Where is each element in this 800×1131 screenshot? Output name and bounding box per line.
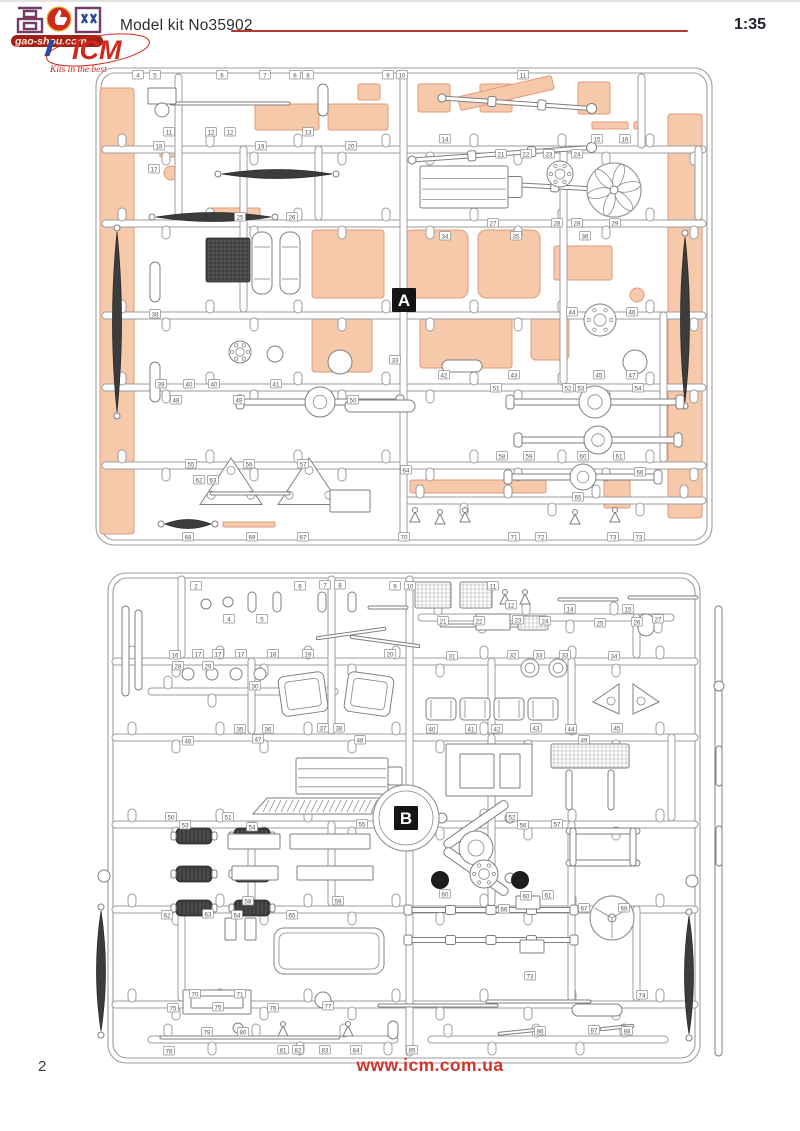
svg-text:59: 59 bbox=[526, 453, 533, 460]
part-number-tag: 26 bbox=[632, 618, 643, 627]
svg-text:77: 77 bbox=[325, 1003, 332, 1010]
svg-text:41: 41 bbox=[273, 381, 280, 388]
svg-text:45: 45 bbox=[596, 372, 603, 379]
part-number-tag: 17 bbox=[149, 165, 160, 174]
svg-text:5: 5 bbox=[260, 616, 264, 623]
part-number-tag: 73 bbox=[608, 533, 619, 542]
svg-text:55: 55 bbox=[188, 461, 195, 468]
svg-text:86: 86 bbox=[537, 1028, 544, 1035]
svg-text:18: 18 bbox=[270, 651, 277, 658]
svg-text:21: 21 bbox=[498, 151, 505, 158]
part-number-tag: 33 bbox=[560, 651, 571, 660]
svg-text:17: 17 bbox=[215, 651, 222, 658]
part-number-tag: 8 bbox=[303, 71, 314, 80]
svg-text:15: 15 bbox=[594, 136, 601, 143]
svg-text:47: 47 bbox=[255, 736, 262, 743]
svg-text:18: 18 bbox=[156, 143, 163, 150]
part-number-tag: 49 bbox=[579, 736, 590, 745]
part-number-tag: 18 bbox=[154, 142, 165, 151]
part-number-tag: 64 bbox=[401, 466, 412, 475]
part-number-tag: 36 bbox=[263, 725, 274, 734]
part-number-tag: 42 bbox=[439, 371, 450, 380]
svg-text:54: 54 bbox=[635, 385, 642, 392]
svg-text:76: 76 bbox=[270, 1005, 277, 1012]
header-rule bbox=[231, 30, 688, 32]
part-number-tag: 39 bbox=[156, 380, 167, 389]
part-number-tag: 6 bbox=[217, 71, 228, 80]
svg-text:42: 42 bbox=[494, 726, 501, 733]
svg-text:85: 85 bbox=[409, 1047, 416, 1054]
part-number-tag: 15 bbox=[592, 135, 603, 144]
part-number-tag: 11 bbox=[488, 582, 499, 591]
svg-text:34: 34 bbox=[611, 653, 618, 660]
part-number-tag: 62 bbox=[162, 911, 173, 920]
svg-text:7: 7 bbox=[263, 72, 267, 79]
scale-label: 1:35 bbox=[734, 16, 766, 34]
svg-text:63: 63 bbox=[210, 477, 217, 484]
svg-text:22: 22 bbox=[476, 618, 483, 625]
part-number-tag: 65 bbox=[573, 493, 584, 502]
part-number-tag: 34 bbox=[609, 652, 620, 661]
svg-text:12: 12 bbox=[227, 129, 234, 136]
svg-text:44: 44 bbox=[568, 726, 575, 733]
svg-text:58: 58 bbox=[499, 453, 506, 460]
svg-text:84: 84 bbox=[353, 1047, 360, 1054]
svg-text:83: 83 bbox=[322, 1047, 329, 1054]
svg-text:79: 79 bbox=[204, 1029, 211, 1036]
svg-text:4: 4 bbox=[227, 616, 231, 623]
part-number-tag: 71 bbox=[235, 990, 246, 999]
part-number-tag: 48 bbox=[355, 736, 366, 745]
svg-text:82: 82 bbox=[295, 1047, 302, 1054]
svg-text:78: 78 bbox=[166, 1048, 173, 1055]
svg-text:60: 60 bbox=[442, 891, 449, 898]
part-number-tag: 73 bbox=[525, 972, 536, 981]
svg-text:21: 21 bbox=[440, 618, 447, 625]
part-number-tag: 35 bbox=[235, 725, 246, 734]
svg-text:71: 71 bbox=[511, 534, 518, 541]
svg-text:53: 53 bbox=[578, 385, 585, 392]
part-number-tag: 85 bbox=[407, 1046, 418, 1055]
part-number-tag: 67 bbox=[298, 533, 309, 542]
part-number-tag: 14 bbox=[440, 135, 451, 144]
part-number-tag: 78 bbox=[164, 1047, 175, 1056]
svg-text:57: 57 bbox=[554, 821, 561, 828]
part-number-tag: 41 bbox=[271, 380, 282, 389]
part-number-tag: 66 bbox=[499, 905, 510, 914]
part-number-tag: 59 bbox=[524, 452, 535, 461]
svg-text:38: 38 bbox=[336, 725, 343, 732]
svg-text:80: 80 bbox=[240, 1029, 247, 1036]
svg-text:2: 2 bbox=[194, 583, 198, 590]
part-number-tag: 80 bbox=[238, 1028, 249, 1037]
part-number-tag: 59 bbox=[333, 897, 344, 906]
part-number-tag: 25 bbox=[595, 619, 606, 628]
svg-text:69: 69 bbox=[249, 534, 256, 541]
svg-text:8: 8 bbox=[293, 72, 297, 79]
sprue-letter-b: B bbox=[373, 785, 439, 851]
part-number-tag: 42 bbox=[492, 725, 503, 734]
svg-text:16: 16 bbox=[172, 652, 179, 659]
svg-text:66: 66 bbox=[501, 906, 508, 913]
part-number-tag: 23 bbox=[513, 616, 524, 625]
svg-text:67: 67 bbox=[581, 905, 588, 912]
part-number-tag: 8 bbox=[290, 71, 301, 80]
svg-text:30: 30 bbox=[252, 683, 259, 690]
page-title: Model kit No35902 bbox=[120, 17, 253, 35]
part-number-tag: 68 bbox=[619, 904, 630, 913]
part-number-tag: 44 bbox=[566, 725, 577, 734]
svg-text:61: 61 bbox=[616, 453, 623, 460]
svg-text:73: 73 bbox=[610, 534, 617, 541]
part-number-tag: 14 bbox=[565, 605, 576, 614]
svg-text:40: 40 bbox=[429, 726, 436, 733]
svg-text:27: 27 bbox=[655, 616, 662, 623]
svg-text:13: 13 bbox=[305, 129, 312, 136]
part-number-tag: 44 bbox=[567, 308, 578, 317]
part-number-tag: 72 bbox=[536, 533, 547, 542]
part-number-tag: 57 bbox=[552, 820, 563, 829]
svg-text:15: 15 bbox=[625, 606, 632, 613]
part-number-tag: 16 bbox=[170, 651, 181, 660]
part-number-tag: 28 bbox=[173, 662, 184, 671]
part-number-tag: 45 bbox=[612, 724, 623, 733]
part-number-tag: 38 bbox=[150, 310, 161, 319]
svg-text:70: 70 bbox=[192, 991, 199, 998]
sprue-b-diagram: 2456789101112141516171717181920212223242… bbox=[88, 566, 736, 1071]
svg-text:10: 10 bbox=[399, 72, 406, 79]
svg-text:58: 58 bbox=[245, 898, 252, 905]
part-number-tag: 46 bbox=[627, 308, 638, 317]
part-number-tag: 84 bbox=[351, 1046, 362, 1055]
svg-text:52: 52 bbox=[565, 385, 572, 392]
manual-page: { "header": { "title": "Model kit No3590… bbox=[0, 0, 800, 1131]
part-number-tag: 27 bbox=[488, 219, 499, 228]
svg-text:42: 42 bbox=[441, 372, 448, 379]
svg-text:32: 32 bbox=[510, 652, 517, 659]
part-number-tag: 37 bbox=[318, 724, 329, 733]
svg-text:48: 48 bbox=[173, 397, 180, 404]
svg-text:33: 33 bbox=[562, 652, 569, 659]
part-number-tag: 65 bbox=[287, 911, 298, 920]
part-number-tag: 58 bbox=[497, 452, 508, 461]
svg-text:17: 17 bbox=[195, 651, 202, 658]
svg-text:34: 34 bbox=[442, 233, 449, 240]
svg-text:62: 62 bbox=[196, 477, 203, 484]
part-number-tag: 43 bbox=[509, 371, 520, 380]
part-number-tag: 4 bbox=[224, 615, 235, 624]
part-number-tag: 70 bbox=[399, 533, 410, 542]
svg-text:11: 11 bbox=[166, 129, 173, 136]
part-number-tag: 15 bbox=[623, 605, 634, 614]
svg-text:23: 23 bbox=[546, 151, 553, 158]
part-number-tag: 68 bbox=[183, 533, 194, 542]
part-number-tag: 56 bbox=[518, 821, 529, 830]
svg-text:65: 65 bbox=[289, 912, 296, 919]
part-number-tag: 30 bbox=[250, 682, 261, 691]
part-number-tag: 77 bbox=[323, 1002, 334, 1011]
part-number-tag: 55 bbox=[186, 460, 197, 469]
svg-text:52: 52 bbox=[509, 814, 516, 821]
svg-text:28: 28 bbox=[574, 220, 581, 227]
part-number-tag: 33 bbox=[390, 356, 401, 365]
part-number-tag: 52 bbox=[563, 384, 574, 393]
part-number-tag: 75 bbox=[168, 1004, 179, 1013]
svg-text:16: 16 bbox=[622, 136, 629, 143]
svg-text:A: A bbox=[398, 291, 410, 310]
part-number-tag: 12 bbox=[206, 128, 217, 137]
svg-text:33: 33 bbox=[392, 357, 399, 364]
svg-text:19: 19 bbox=[258, 143, 265, 150]
svg-text:26: 26 bbox=[634, 619, 641, 626]
part-number-tag: 18 bbox=[268, 650, 279, 659]
part-number-tag: 12 bbox=[225, 128, 236, 137]
part-number-tag: 53 bbox=[180, 821, 191, 830]
part-number-tag: 51 bbox=[223, 813, 234, 822]
svg-text:62: 62 bbox=[164, 912, 171, 919]
part-number-tag: 52 bbox=[507, 813, 518, 822]
svg-text:65: 65 bbox=[575, 494, 582, 501]
svg-text:75: 75 bbox=[215, 1004, 222, 1011]
svg-text:12: 12 bbox=[508, 602, 515, 609]
svg-text:20: 20 bbox=[387, 651, 394, 658]
svg-text:63: 63 bbox=[205, 911, 212, 918]
svg-text:56: 56 bbox=[246, 461, 253, 468]
page-number: 2 bbox=[38, 1058, 46, 1075]
svg-text:29: 29 bbox=[205, 663, 212, 670]
svg-text:35: 35 bbox=[237, 726, 244, 733]
svg-text:50: 50 bbox=[350, 397, 357, 404]
svg-text:11: 11 bbox=[520, 72, 527, 79]
svg-text:87: 87 bbox=[591, 1027, 598, 1034]
svg-text:44: 44 bbox=[569, 309, 576, 316]
svg-text:64: 64 bbox=[234, 912, 241, 919]
svg-text:25: 25 bbox=[597, 620, 604, 627]
svg-text:73: 73 bbox=[527, 973, 534, 980]
part-number-tag: 61 bbox=[543, 891, 554, 900]
part-number-tag: 9 bbox=[390, 582, 401, 591]
part-number-tag: 22 bbox=[521, 150, 532, 159]
part-number-tag: 21 bbox=[438, 617, 449, 626]
thumbs-up-icon bbox=[47, 7, 71, 31]
site-char-right-icon bbox=[76, 8, 100, 32]
part-number-tag: 79 bbox=[202, 1028, 213, 1037]
part-number-tag: 5 bbox=[257, 615, 268, 624]
svg-text:72: 72 bbox=[538, 534, 545, 541]
part-number-tag: 40 bbox=[184, 380, 195, 389]
svg-text:74: 74 bbox=[639, 992, 646, 999]
part-number-tag: 9 bbox=[383, 71, 394, 80]
svg-text:61: 61 bbox=[545, 892, 552, 899]
part-number-tag: 60 bbox=[440, 890, 451, 899]
svg-text:46: 46 bbox=[185, 738, 192, 745]
part-number-tag: 31 bbox=[447, 652, 458, 661]
svg-text:68: 68 bbox=[621, 905, 628, 912]
svg-text:8: 8 bbox=[338, 582, 342, 589]
part-number-tag: 7 bbox=[260, 71, 271, 80]
part-number-tag: 24 bbox=[540, 617, 551, 626]
part-number-tag: 81 bbox=[278, 1046, 289, 1055]
svg-text:64: 64 bbox=[403, 467, 410, 474]
part-number-tag: 21 bbox=[496, 150, 507, 159]
part-number-tag: 47 bbox=[253, 735, 264, 744]
part-number-tag: 66 bbox=[635, 468, 646, 477]
part-number-tag: 64 bbox=[232, 911, 243, 920]
part-number-tag: 28 bbox=[552, 219, 563, 228]
part-number-tag: 63 bbox=[203, 910, 214, 919]
svg-text:27: 27 bbox=[490, 220, 497, 227]
svg-text:53: 53 bbox=[182, 822, 189, 829]
part-number-tag: 32 bbox=[508, 651, 519, 660]
svg-text:37: 37 bbox=[320, 725, 327, 732]
svg-text:48: 48 bbox=[357, 737, 364, 744]
svg-text:22: 22 bbox=[523, 151, 530, 158]
svg-text:10: 10 bbox=[407, 583, 414, 590]
part-number-tag: 8 bbox=[335, 581, 346, 590]
svg-text:40: 40 bbox=[186, 381, 193, 388]
part-number-tag: 20 bbox=[346, 142, 357, 151]
svg-text:9: 9 bbox=[393, 583, 397, 590]
svg-text:36: 36 bbox=[582, 233, 589, 240]
part-number-tag: 13 bbox=[303, 128, 314, 137]
part-number-tag: 45 bbox=[594, 371, 605, 380]
part-number-tag: 36 bbox=[580, 232, 591, 241]
part-number-tag: 74 bbox=[637, 991, 648, 1000]
part-number-tag: 17 bbox=[213, 650, 224, 659]
part-number-tag: 54 bbox=[633, 384, 644, 393]
svg-text:55: 55 bbox=[359, 821, 366, 828]
part-number-tag: 83 bbox=[320, 1046, 331, 1055]
part-number-tag: 40 bbox=[209, 380, 220, 389]
svg-text:24: 24 bbox=[542, 618, 549, 625]
svg-text:51: 51 bbox=[493, 385, 500, 392]
svg-text:8: 8 bbox=[306, 72, 310, 79]
site-url: www.icm.com.ua bbox=[290, 1055, 570, 1076]
part-number-tag: 46 bbox=[183, 737, 194, 746]
part-number-tag: 25 bbox=[235, 213, 246, 222]
svg-text:51: 51 bbox=[225, 814, 232, 821]
part-number-tag: 38 bbox=[334, 724, 345, 733]
part-number-tag: 27 bbox=[653, 615, 664, 624]
part-number-tag: 29 bbox=[203, 662, 214, 671]
part-number-tag: 60 bbox=[521, 892, 532, 901]
svg-text:B: B bbox=[400, 809, 412, 828]
part-number-tag: 26 bbox=[287, 213, 298, 222]
part-number-tag: 11 bbox=[518, 71, 529, 80]
svg-text:49: 49 bbox=[581, 737, 588, 744]
svg-text:59: 59 bbox=[335, 898, 342, 905]
part-number-tag: 47 bbox=[627, 371, 638, 380]
part-number-tag: 33 bbox=[534, 651, 545, 660]
svg-text:56: 56 bbox=[520, 822, 527, 829]
svg-text:41: 41 bbox=[468, 726, 475, 733]
sprue-a-diagram: 4567889101111121213141516171819202122232… bbox=[90, 62, 718, 554]
svg-text:70: 70 bbox=[401, 534, 408, 541]
svg-text:5: 5 bbox=[153, 72, 157, 79]
part-number-tag: 49 bbox=[234, 396, 245, 405]
part-number-tag: 10 bbox=[397, 71, 408, 80]
svg-text:29: 29 bbox=[612, 220, 619, 227]
part-number-tag: 70 bbox=[190, 990, 201, 999]
part-number-tag: 53 bbox=[576, 384, 587, 393]
part-number-tag: 75 bbox=[213, 1003, 224, 1012]
svg-text:60: 60 bbox=[580, 453, 587, 460]
part-number-tag: 86 bbox=[535, 1027, 546, 1036]
svg-text:75: 75 bbox=[170, 1005, 177, 1012]
part-number-tag: 20 bbox=[385, 650, 396, 659]
part-number-tag: 24 bbox=[572, 150, 583, 159]
svg-text:25: 25 bbox=[237, 214, 244, 221]
part-number-tag: 50 bbox=[166, 813, 177, 822]
svg-text:73: 73 bbox=[636, 534, 643, 541]
part-number-tag: 57 bbox=[298, 460, 309, 469]
part-number-tag: 51 bbox=[491, 384, 502, 393]
svg-text:39: 39 bbox=[158, 381, 165, 388]
part-number-tag: 17 bbox=[236, 650, 247, 659]
svg-text:43: 43 bbox=[533, 725, 540, 732]
svg-text:24: 24 bbox=[574, 151, 581, 158]
svg-text:9: 9 bbox=[386, 72, 390, 79]
part-number-tag: 50 bbox=[348, 396, 359, 405]
part-number-tag: 22 bbox=[474, 617, 485, 626]
part-number-tag: 71 bbox=[509, 533, 520, 542]
part-number-tag: 12 bbox=[506, 601, 517, 610]
part-number-tag: 10 bbox=[405, 582, 416, 591]
part-number-tag: 35 bbox=[511, 232, 522, 241]
svg-text:57: 57 bbox=[300, 461, 307, 468]
svg-text:43: 43 bbox=[511, 372, 518, 379]
part-number-tag: 7 bbox=[320, 581, 331, 590]
part-number-tag: 41 bbox=[466, 725, 477, 734]
svg-text:14: 14 bbox=[442, 136, 449, 143]
part-number-tag: 19 bbox=[303, 650, 314, 659]
brand-text: ICM bbox=[72, 35, 122, 65]
svg-text:12: 12 bbox=[208, 129, 215, 136]
svg-text:71: 71 bbox=[237, 991, 244, 998]
part-number-tag: 43 bbox=[531, 724, 542, 733]
part-number-tag: 34 bbox=[440, 232, 451, 241]
svg-text:28: 28 bbox=[175, 663, 182, 670]
part-number-tag: 29 bbox=[610, 219, 621, 228]
part-number-tag: 58 bbox=[243, 897, 254, 906]
svg-text:60: 60 bbox=[523, 893, 530, 900]
part-number-tag: 82 bbox=[293, 1046, 304, 1055]
part-number-tag: 54 bbox=[247, 823, 258, 832]
svg-text:14: 14 bbox=[567, 606, 574, 613]
part-number-tag: 28 bbox=[572, 219, 583, 228]
svg-text:6: 6 bbox=[220, 72, 224, 79]
svg-text:17: 17 bbox=[238, 651, 245, 658]
svg-text:28: 28 bbox=[554, 220, 561, 227]
part-number-tag: 87 bbox=[589, 1026, 600, 1035]
svg-text:19: 19 bbox=[305, 651, 312, 658]
part-number-tag: 11 bbox=[164, 128, 175, 137]
svg-text:47: 47 bbox=[629, 372, 636, 379]
part-number-tag: 61 bbox=[614, 452, 625, 461]
part-number-tag: 60 bbox=[578, 452, 589, 461]
svg-text:35: 35 bbox=[513, 233, 520, 240]
part-number-tag: 17 bbox=[193, 650, 204, 659]
part-number-tag: 67 bbox=[579, 904, 590, 913]
part-number-tag: 55 bbox=[357, 820, 368, 829]
svg-text:49: 49 bbox=[236, 397, 243, 404]
part-number-tag: 88 bbox=[622, 1027, 633, 1036]
svg-text:54: 54 bbox=[249, 824, 256, 831]
svg-text:11: 11 bbox=[490, 583, 497, 590]
svg-text:31: 31 bbox=[449, 653, 456, 660]
part-number-tag: 5 bbox=[150, 71, 161, 80]
svg-text:40: 40 bbox=[211, 381, 218, 388]
